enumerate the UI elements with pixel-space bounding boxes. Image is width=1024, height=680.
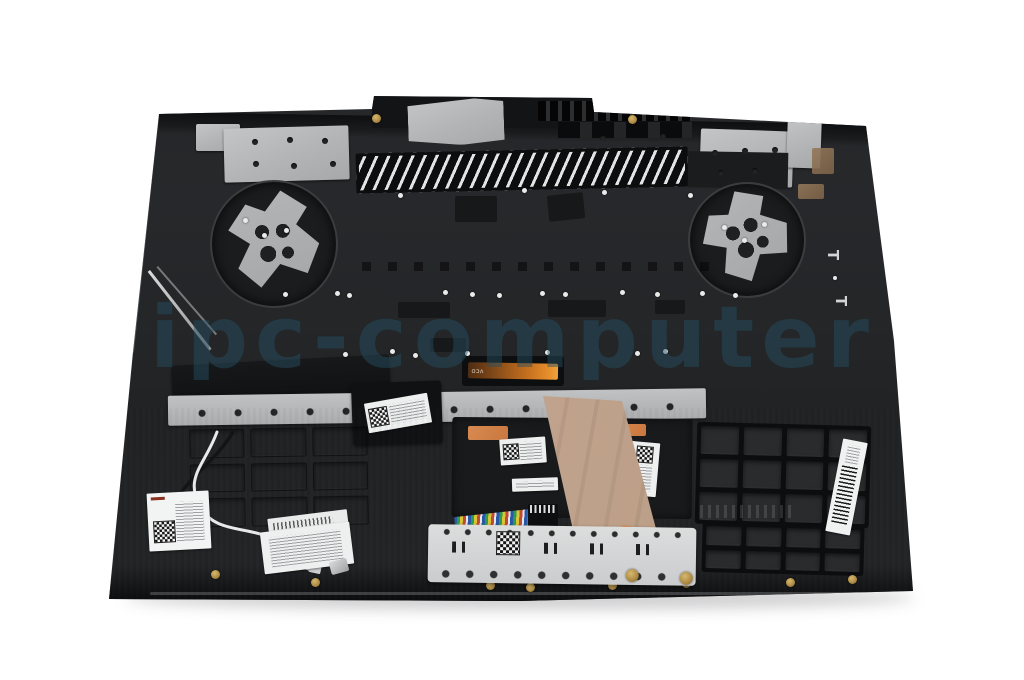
plate-screw [291, 163, 297, 169]
plate-screw [322, 138, 328, 144]
plate-screw [253, 161, 259, 167]
screw-hole [343, 352, 348, 357]
plate-screw [772, 147, 778, 153]
plate-screw [712, 150, 718, 156]
gold-screw [211, 570, 220, 579]
gold-screw [680, 572, 693, 585]
plate-screw [600, 135, 606, 141]
gold-screw [628, 115, 637, 124]
bracket-alignment-marks [452, 541, 680, 555]
screw-hole [522, 188, 527, 193]
plate-screw [660, 133, 666, 139]
screw-hole [742, 238, 747, 243]
screw-hole [563, 292, 568, 297]
screw-hole [243, 218, 248, 223]
gold-screw [626, 569, 639, 582]
screw-hole [390, 349, 395, 354]
screw-hole [497, 293, 502, 298]
screw-hole [545, 350, 550, 355]
screw-hole [413, 353, 418, 358]
bracket-hole-row-top [436, 527, 688, 540]
screw-hole [470, 292, 475, 297]
screw-hole [284, 228, 289, 233]
screw-hole [655, 292, 660, 297]
touchpad-bracket-plate [428, 524, 697, 586]
gold-screw [372, 114, 381, 123]
screw-hole [722, 225, 727, 230]
screw-hole [762, 222, 767, 227]
gold-screw [848, 575, 857, 584]
screw-hole [398, 193, 403, 198]
plate-screw [252, 139, 258, 145]
plate-screw [287, 137, 293, 143]
screw-hole [700, 291, 705, 296]
plate-screw [752, 168, 758, 174]
screw-hole [540, 291, 545, 296]
bracket-hole-row-bottom [434, 568, 692, 583]
screw-hole [465, 351, 470, 356]
screw-hole [347, 293, 352, 298]
plate-screw [742, 148, 748, 154]
screw-hole [688, 193, 693, 198]
screw-hole [602, 190, 607, 195]
screw-hole [733, 293, 738, 298]
screw-hole [283, 292, 288, 297]
product-photo-stage: VCO [0, 0, 1024, 680]
gold-screw [786, 578, 795, 587]
screw-hole [620, 290, 625, 295]
screw-hole [663, 349, 668, 354]
laptop-topcase: VCO [0, 0, 1024, 680]
screw-hole [262, 233, 267, 238]
screw-hole [635, 351, 640, 356]
gold-screw [526, 583, 535, 592]
screw-hole [443, 290, 448, 295]
gold-screw [311, 578, 320, 587]
plate-screw [718, 170, 724, 176]
screw-hole [335, 291, 340, 296]
plate-screw [330, 161, 336, 167]
qr-code [496, 531, 520, 555]
